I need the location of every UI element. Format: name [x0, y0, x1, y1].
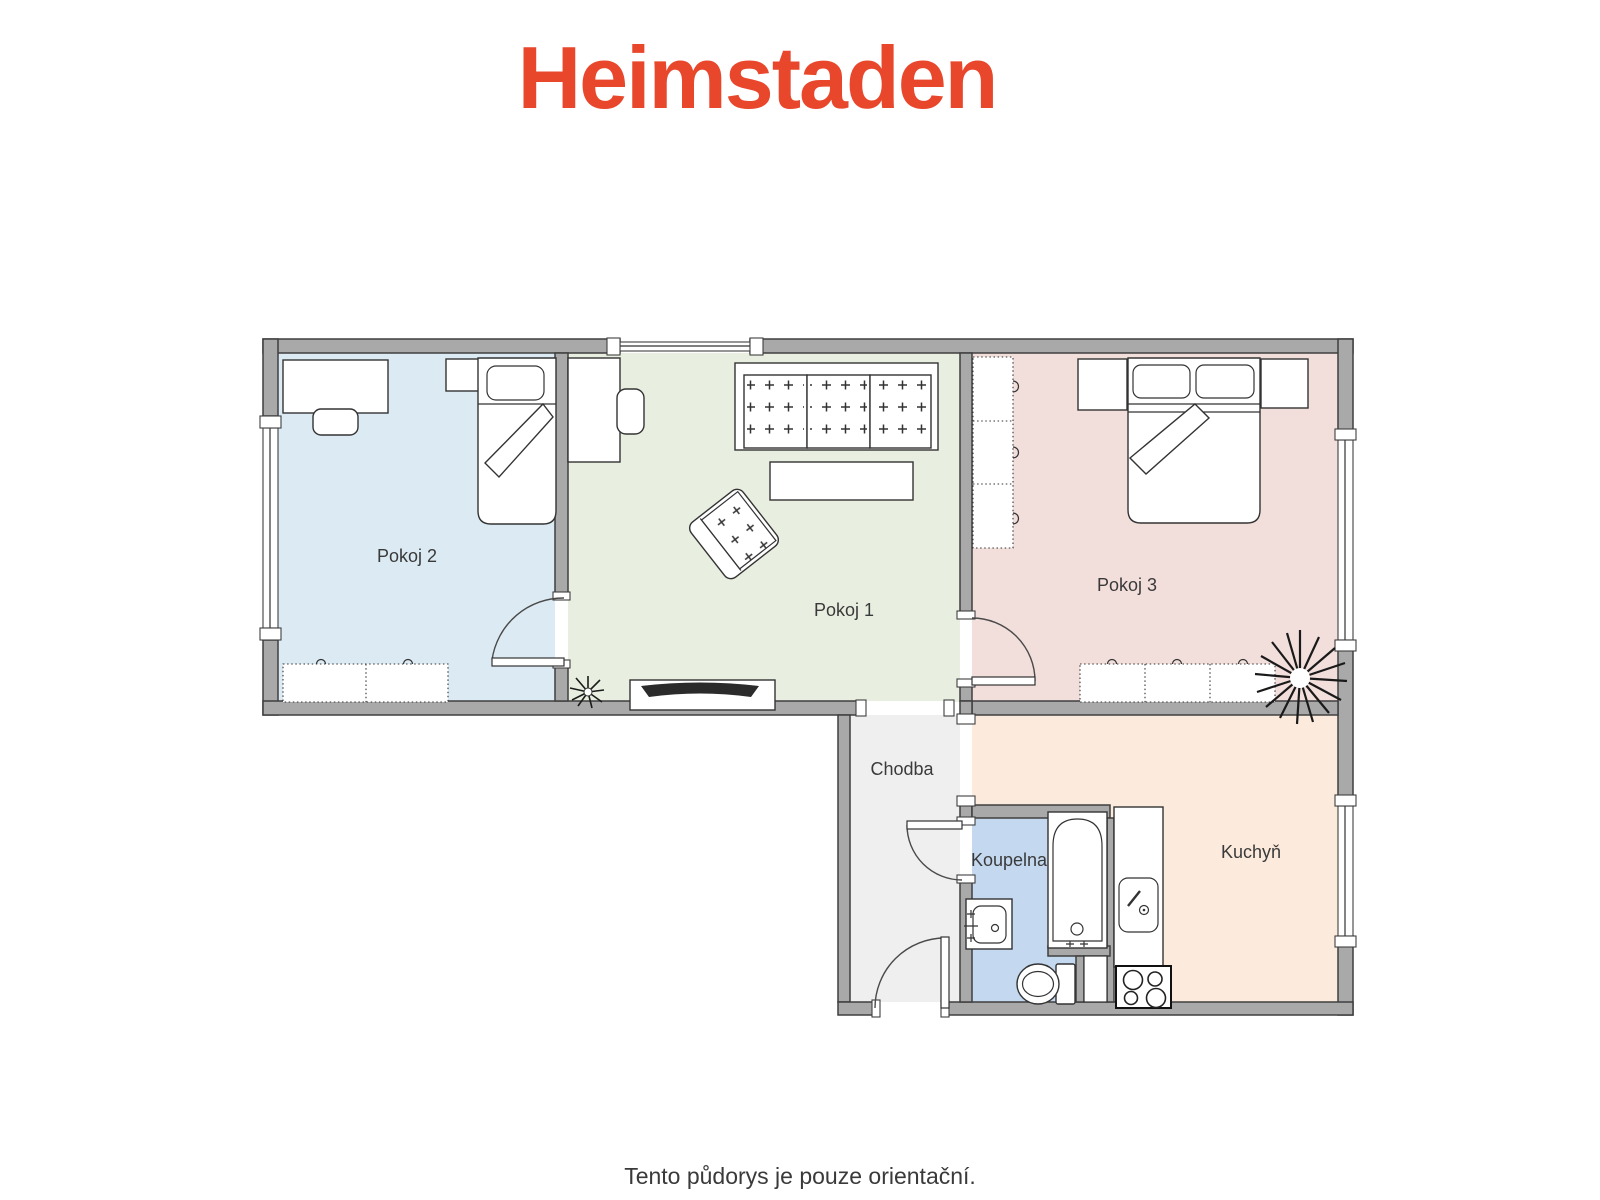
- window-pokoj3-right: [1335, 429, 1356, 651]
- wall: [555, 353, 568, 598]
- kuchyn-fixtures: [1114, 807, 1171, 1008]
- kitchen-counter: [1114, 807, 1163, 967]
- label-koupelna: Koupelna: [971, 850, 1048, 870]
- bedside-table: [1078, 359, 1127, 410]
- wall: [750, 339, 1353, 353]
- label-pokoj1: Pokoj 1: [814, 600, 874, 620]
- wall: [1338, 339, 1353, 432]
- wardrobe: [973, 357, 1013, 548]
- wall: [838, 1002, 875, 1015]
- wall: [263, 339, 278, 416]
- window-kuchyn-right: [1335, 795, 1356, 947]
- chair: [617, 389, 644, 434]
- label-chodba: Chodba: [870, 759, 934, 779]
- stove: [1116, 966, 1171, 1008]
- window-pokoj1-top: [607, 338, 763, 355]
- passage-pokoj1-chodba: [856, 700, 954, 716]
- wall: [1076, 956, 1084, 1002]
- window-pokoj2-left: [260, 416, 281, 640]
- label-pokoj2: Pokoj 2: [377, 546, 437, 566]
- wall: [1107, 818, 1114, 1002]
- bathtub: [1048, 812, 1107, 948]
- disclaimer-text: Tento půdorys je pouze orientační.: [0, 1163, 1600, 1190]
- bedside-table: [446, 359, 479, 391]
- wall: [1338, 648, 1353, 806]
- toilet: [1017, 964, 1075, 1004]
- dresser: [283, 664, 448, 702]
- washer-space: [1084, 956, 1107, 1002]
- bedside-table: [1261, 359, 1308, 408]
- desk: [568, 358, 620, 462]
- wall: [263, 339, 620, 353]
- dresser: [1080, 664, 1275, 702]
- page: Heimstaden: [0, 0, 1600, 1200]
- floorplan-svg: Pokoj 2 Pokoj 1 Pokoj 3 Chodba Koupelna …: [0, 0, 1600, 1200]
- double-bed: [1128, 358, 1260, 523]
- label-kuchyn: Kuchyň: [1221, 842, 1281, 862]
- wall: [838, 715, 850, 1002]
- label-pokoj3: Pokoj 3: [1097, 575, 1157, 595]
- chair: [313, 409, 358, 435]
- desk: [283, 360, 388, 413]
- coffee-table: [770, 462, 913, 500]
- wall: [960, 353, 972, 617]
